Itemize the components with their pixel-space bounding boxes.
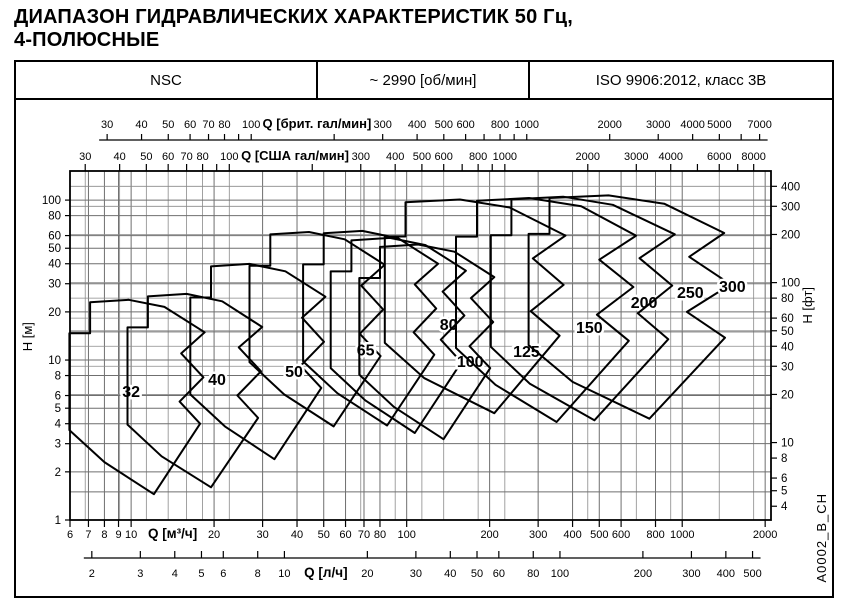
page-title-line1: ДИАПАЗОН ГИДРАВЛИЧЕСКИХ ХАРАКТЕРИСТИК 50… (14, 6, 834, 29)
svg-text:7: 7 (85, 529, 91, 541)
y-axis-m: 123456810203040506080100H [м] (20, 195, 70, 527)
svg-text:3000: 3000 (624, 151, 648, 163)
svg-text:Q [брит. гал/мин]: Q [брит. гал/мин] (263, 116, 372, 131)
svg-text:Q [США гал/мин]: Q [США гал/мин] (241, 148, 349, 163)
gridlines (70, 171, 771, 520)
svg-text:60: 60 (184, 119, 196, 131)
svg-text:300: 300 (682, 568, 700, 580)
svg-text:5: 5 (198, 568, 204, 580)
header-speed: ~ 2990 [об/мин] (318, 62, 530, 98)
svg-text:80: 80 (781, 293, 794, 305)
svg-text:30: 30 (256, 529, 268, 541)
svg-text:60: 60 (48, 231, 61, 243)
svg-text:20: 20 (781, 389, 794, 401)
svg-text:500: 500 (413, 151, 431, 163)
svg-text:4: 4 (172, 568, 178, 580)
svg-text:50: 50 (140, 151, 152, 163)
svg-text:100: 100 (242, 119, 260, 131)
svg-text:200: 200 (480, 529, 498, 541)
bottom-axis-lps: 23456810203040506080100200300400500Q [л/… (84, 551, 762, 580)
svg-text:250: 250 (677, 285, 704, 302)
svg-text:600: 600 (612, 529, 630, 541)
svg-text:400: 400 (781, 181, 800, 193)
svg-text:80: 80 (527, 568, 539, 580)
chart-box: 3040506070801003004005006008001000200030… (14, 98, 834, 598)
svg-text:40: 40 (114, 151, 126, 163)
svg-text:3: 3 (137, 568, 143, 580)
svg-text:400: 400 (408, 119, 426, 131)
svg-text:60: 60 (162, 151, 174, 163)
top-axis-imp-gpm: 3040506070801003004005006008001000200030… (99, 116, 772, 140)
svg-text:2: 2 (55, 467, 61, 479)
svg-text:50: 50 (781, 326, 794, 338)
svg-text:2000: 2000 (753, 529, 777, 541)
svg-text:8: 8 (255, 568, 261, 580)
svg-text:30: 30 (48, 279, 61, 291)
bottom-axis-m3h: 6789102030405060708010020030040050060080… (67, 520, 777, 541)
header-table: NSC ~ 2990 [об/мин] ISO 9906:2012, класс… (14, 60, 834, 100)
svg-text:80: 80 (196, 151, 208, 163)
svg-text:600: 600 (456, 119, 474, 131)
y-axis-ft: 456810203040506080100200300400H [фт] (771, 181, 815, 513)
svg-text:7000: 7000 (747, 119, 771, 131)
svg-text:10: 10 (48, 355, 61, 367)
svg-text:70: 70 (180, 151, 192, 163)
svg-text:4: 4 (781, 501, 788, 513)
svg-text:6: 6 (55, 391, 61, 403)
envelope-50: 50 (190, 264, 325, 459)
svg-text:32: 32 (122, 384, 140, 401)
svg-text:9: 9 (115, 529, 121, 541)
svg-text:60: 60 (781, 313, 794, 325)
svg-text:8: 8 (101, 529, 107, 541)
svg-text:6: 6 (67, 529, 73, 541)
top-axis-us-gpm: 3040506070801003004005006008001000200030… (79, 148, 766, 171)
svg-text:50: 50 (285, 364, 303, 381)
svg-text:8: 8 (781, 453, 787, 465)
svg-text:300: 300 (719, 279, 746, 296)
svg-text:400: 400 (386, 151, 404, 163)
svg-text:300: 300 (529, 529, 547, 541)
svg-text:200: 200 (781, 229, 800, 241)
svg-text:4000: 4000 (658, 151, 682, 163)
svg-text:30: 30 (410, 568, 422, 580)
svg-text:2000: 2000 (576, 151, 600, 163)
svg-text:30: 30 (781, 361, 794, 373)
svg-text:1000: 1000 (493, 151, 517, 163)
svg-text:H [м]: H [м] (20, 322, 35, 351)
svg-text:40: 40 (781, 341, 794, 353)
svg-text:500: 500 (743, 568, 761, 580)
svg-text:100: 100 (42, 195, 61, 207)
svg-text:5000: 5000 (707, 119, 731, 131)
svg-text:400: 400 (717, 568, 735, 580)
drawing-code: A0002_B_CH (814, 493, 829, 583)
svg-text:5: 5 (781, 486, 787, 498)
svg-text:1000: 1000 (670, 529, 694, 541)
svg-text:40: 40 (444, 568, 456, 580)
envelope-125: 125 (359, 245, 540, 440)
svg-text:80: 80 (218, 119, 230, 131)
svg-text:30: 30 (79, 151, 91, 163)
svg-text:20: 20 (48, 307, 61, 319)
svg-text:150: 150 (576, 320, 603, 337)
svg-text:2000: 2000 (597, 119, 621, 131)
svg-text:125: 125 (513, 344, 540, 361)
svg-text:800: 800 (491, 119, 509, 131)
svg-text:70: 70 (358, 529, 370, 541)
envelope-40: 40 (128, 294, 263, 487)
svg-text:3000: 3000 (646, 119, 670, 131)
svg-text:H [фт]: H [фт] (800, 287, 815, 324)
svg-text:4000: 4000 (680, 119, 704, 131)
svg-text:500: 500 (435, 119, 453, 131)
svg-text:3: 3 (55, 439, 61, 451)
svg-text:20: 20 (208, 529, 220, 541)
coverage-chart: 3040506070801003004005006008001000200030… (16, 100, 832, 596)
svg-text:20: 20 (361, 568, 373, 580)
svg-text:40: 40 (208, 372, 226, 389)
svg-text:10: 10 (278, 568, 290, 580)
svg-text:100: 100 (551, 568, 569, 580)
svg-text:10: 10 (781, 438, 794, 450)
svg-text:200: 200 (634, 568, 652, 580)
svg-text:80: 80 (374, 529, 386, 541)
svg-text:100: 100 (220, 151, 238, 163)
plot-frame (70, 171, 771, 520)
svg-text:10: 10 (125, 529, 137, 541)
svg-text:5: 5 (55, 403, 61, 415)
svg-text:100: 100 (397, 529, 415, 541)
svg-text:30: 30 (101, 119, 113, 131)
svg-text:80: 80 (48, 211, 61, 223)
svg-text:300: 300 (781, 201, 800, 213)
svg-text:8: 8 (55, 371, 61, 383)
svg-text:1000: 1000 (515, 119, 539, 131)
svg-text:Q [л/ч]: Q [л/ч] (304, 565, 347, 580)
svg-text:100: 100 (781, 278, 800, 290)
page-title: ДИАПАЗОН ГИДРАВЛИЧЕСКИХ ХАРАКТЕРИСТИК 50… (14, 6, 834, 52)
svg-text:1: 1 (55, 515, 61, 527)
svg-text:40: 40 (291, 529, 303, 541)
svg-text:400: 400 (563, 529, 581, 541)
svg-text:800: 800 (646, 529, 664, 541)
svg-text:50: 50 (471, 568, 483, 580)
svg-text:70: 70 (202, 119, 214, 131)
header-standard: ISO 9906:2012, класс 3В (530, 62, 832, 98)
svg-text:60: 60 (493, 568, 505, 580)
svg-text:6: 6 (220, 568, 226, 580)
svg-text:40: 40 (135, 119, 147, 131)
svg-text:300: 300 (373, 119, 391, 131)
svg-text:4: 4 (55, 419, 62, 431)
svg-text:40: 40 (48, 259, 61, 271)
svg-text:50: 50 (318, 529, 330, 541)
envelope-32: 32 (69, 300, 204, 494)
svg-text:Q [м³/ч]: Q [м³/ч] (148, 526, 197, 541)
svg-text:50: 50 (162, 119, 174, 131)
svg-text:8000: 8000 (741, 151, 765, 163)
svg-text:6: 6 (781, 473, 787, 485)
svg-text:2: 2 (89, 568, 95, 580)
svg-text:600: 600 (435, 151, 453, 163)
svg-text:200: 200 (631, 295, 658, 312)
header-series: NSC (16, 62, 318, 98)
svg-text:60: 60 (339, 529, 351, 541)
svg-text:6000: 6000 (707, 151, 731, 163)
envelope-250: 250 (491, 197, 704, 421)
svg-text:800: 800 (469, 151, 487, 163)
svg-text:50: 50 (48, 243, 61, 255)
svg-text:500: 500 (590, 529, 608, 541)
page-title-line2: 4-ПОЛЮСНЫЕ (14, 29, 834, 52)
svg-text:300: 300 (352, 151, 370, 163)
